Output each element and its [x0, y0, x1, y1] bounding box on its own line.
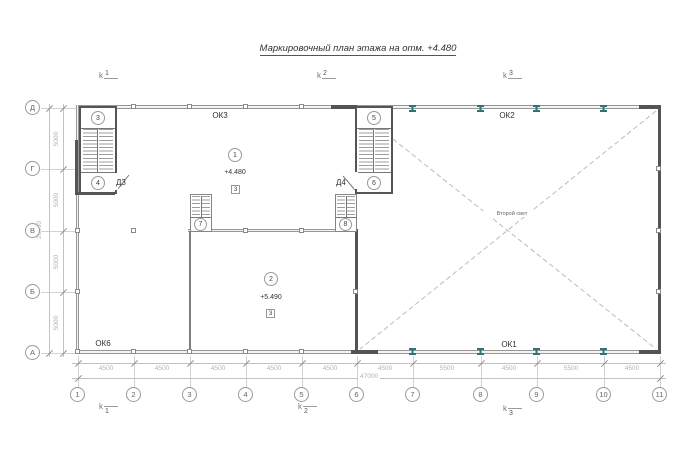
section-mark-1-top: k1	[99, 71, 118, 82]
column-marker	[75, 289, 80, 294]
grid-bubble-col-9: 9	[529, 387, 544, 402]
window-mark-ok6: ОК6	[83, 339, 123, 348]
column-marker	[299, 228, 304, 233]
stair-flight	[359, 129, 373, 172]
room-mark-circle: 7	[194, 218, 207, 231]
grid-bubble-col-11: 11	[652, 387, 667, 402]
grid-bubble-col-10: 10	[596, 387, 611, 402]
stair-landing-line	[357, 172, 391, 173]
section-mark-1-bottom: k1	[99, 402, 118, 411]
steel-column-icon	[533, 105, 540, 112]
dim-label: 4500	[357, 365, 413, 372]
grid-bubble-row-a: А	[25, 345, 40, 360]
section-arrow: k	[317, 71, 321, 80]
section-mark-2-top: k2	[317, 71, 336, 82]
stair-flight	[347, 196, 355, 217]
section-arrow: k	[99, 402, 103, 411]
stair-flight	[375, 129, 389, 172]
steel-column-icon	[600, 105, 607, 112]
grid-leader	[41, 169, 76, 170]
grid-bubble-col-4: 4	[238, 387, 253, 402]
grid-leader	[41, 108, 76, 109]
room2-wall-left	[189, 231, 191, 352]
grid-bubble-col-5: 5	[294, 387, 309, 402]
grid-bubble-col-1: 1	[70, 387, 85, 402]
stair-7: 7	[190, 194, 212, 232]
section-arrow: k	[99, 71, 103, 80]
grid-bubble-col-2: 2	[126, 387, 141, 402]
column-marker	[75, 349, 80, 354]
wall-segment-axis6-top	[331, 105, 357, 109]
steel-column-icon	[409, 105, 416, 112]
dimension-line	[49, 104, 50, 357]
section-arrow: k	[503, 404, 507, 413]
section-mark-3-top: k3	[503, 71, 522, 82]
column-marker	[131, 104, 136, 109]
column-marker	[353, 289, 358, 294]
dim-label: 4500	[134, 365, 190, 372]
dim-label: 5000	[53, 180, 63, 220]
room1-elevation: +4.480	[215, 169, 255, 176]
grid-bubble-col-6: 6	[349, 387, 364, 402]
room-mark-circle: 3	[91, 111, 105, 125]
column-marker	[187, 349, 192, 354]
dim-label: 5000	[53, 303, 63, 343]
dimension-line	[72, 363, 666, 364]
column-marker	[243, 228, 248, 233]
column-marker	[299, 104, 304, 109]
dim-label: 4500	[481, 365, 537, 372]
grid-leader	[41, 231, 76, 232]
stair-divider	[97, 129, 98, 172]
grid-bubble-col-3: 3	[182, 387, 197, 402]
column-marker	[75, 228, 80, 233]
column-marker	[131, 228, 136, 233]
stair-flight	[202, 196, 210, 217]
grid-leader	[41, 292, 76, 293]
room-mark-circle: 8	[339, 218, 352, 231]
door-opening-d4	[354, 172, 358, 189]
stair-flight	[99, 129, 113, 172]
grid-bubble-row-g: Г	[25, 161, 40, 176]
grid-bubble-row-d: Д	[25, 100, 40, 115]
dim-label: 5500	[419, 365, 475, 372]
stairwell-1: 3 4	[79, 106, 117, 194]
window-mark-ok1: ОК1	[489, 340, 529, 349]
stairwell-2: 5 6	[355, 106, 393, 194]
room1-mark-circle: 1	[228, 148, 242, 162]
steel-column-icon	[477, 348, 484, 355]
section-arrow: k	[503, 71, 507, 80]
stair-8: 8	[335, 194, 357, 232]
grid-leader	[41, 353, 76, 354]
dim-label: 5000	[53, 242, 63, 282]
dim-label: 4500	[604, 365, 660, 372]
dim-label: 4500	[190, 365, 246, 372]
stair-flight	[337, 196, 345, 217]
grid-bubble-col-8: 8	[473, 387, 488, 402]
steel-column-icon	[409, 348, 416, 355]
grid-bubble-col-7: 7	[405, 387, 420, 402]
room-mark-circle: 4	[91, 176, 105, 190]
column-marker	[299, 349, 304, 354]
wall-corner-bottom-right	[639, 350, 661, 354]
room-mark-circle: 6	[367, 176, 381, 190]
door-label-d3: Д3	[116, 178, 126, 187]
column-marker	[656, 166, 661, 171]
section-mark-3-bottom: k3	[503, 404, 522, 413]
column-marker	[187, 104, 192, 109]
window-mark-ok3: ОК3	[200, 111, 240, 120]
stair-landing-line	[81, 172, 115, 173]
column-marker	[656, 289, 661, 294]
column-marker	[243, 104, 248, 109]
room-mark-circle: 5	[367, 111, 381, 125]
stair-flight	[83, 129, 97, 172]
dim-label: 4500	[246, 365, 302, 372]
column-marker	[131, 349, 136, 354]
window-mark-ok2: ОК2	[487, 111, 527, 120]
room2-floor-type: 3	[266, 309, 275, 318]
section-arrow: k	[298, 402, 302, 411]
dim-label: 4500	[302, 365, 358, 372]
steel-column-icon	[477, 105, 484, 112]
column-marker	[656, 228, 661, 233]
room2-elevation: +5.490	[251, 294, 291, 301]
room1-floor-type: 3	[231, 185, 240, 194]
room2-mark-circle: 2	[264, 272, 278, 286]
column-marker	[243, 349, 248, 354]
drawing-title: Маркировочный план этажа на отм. +4.480	[158, 43, 558, 54]
steel-column-icon	[600, 348, 607, 355]
stair-divider	[201, 196, 202, 217]
steel-column-icon	[533, 348, 540, 355]
stair-flight	[192, 196, 200, 217]
dim-label: 5000	[53, 119, 63, 159]
stair-divider	[373, 129, 374, 172]
grid-bubble-row-v: В	[25, 223, 40, 238]
floor-plan-drawing: Маркировочный план этажа на отм. +4.480 …	[0, 0, 700, 474]
second-light-note: Второй свет	[480, 211, 544, 217]
wall-corner-top-right	[639, 105, 661, 109]
section-mark-2-bottom: k2	[298, 402, 317, 411]
dim-label: 4500	[78, 365, 134, 372]
wall-axis-v	[188, 229, 357, 232]
dim-total-label: 47000	[358, 373, 380, 380]
stair1-wall-left	[75, 140, 78, 195]
stair-divider	[346, 196, 347, 217]
grid-bubble-row-b: Б	[25, 284, 40, 299]
door-label-d4: Д4	[336, 178, 346, 187]
dim-label: 5500	[543, 365, 599, 372]
